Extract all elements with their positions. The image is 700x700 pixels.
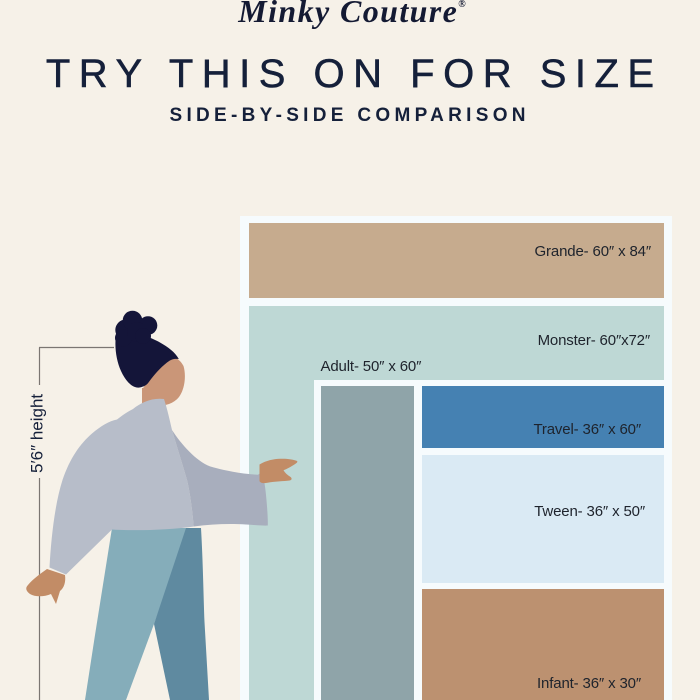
svg-text:5′6″ height: 5′6″ height — [28, 394, 47, 473]
